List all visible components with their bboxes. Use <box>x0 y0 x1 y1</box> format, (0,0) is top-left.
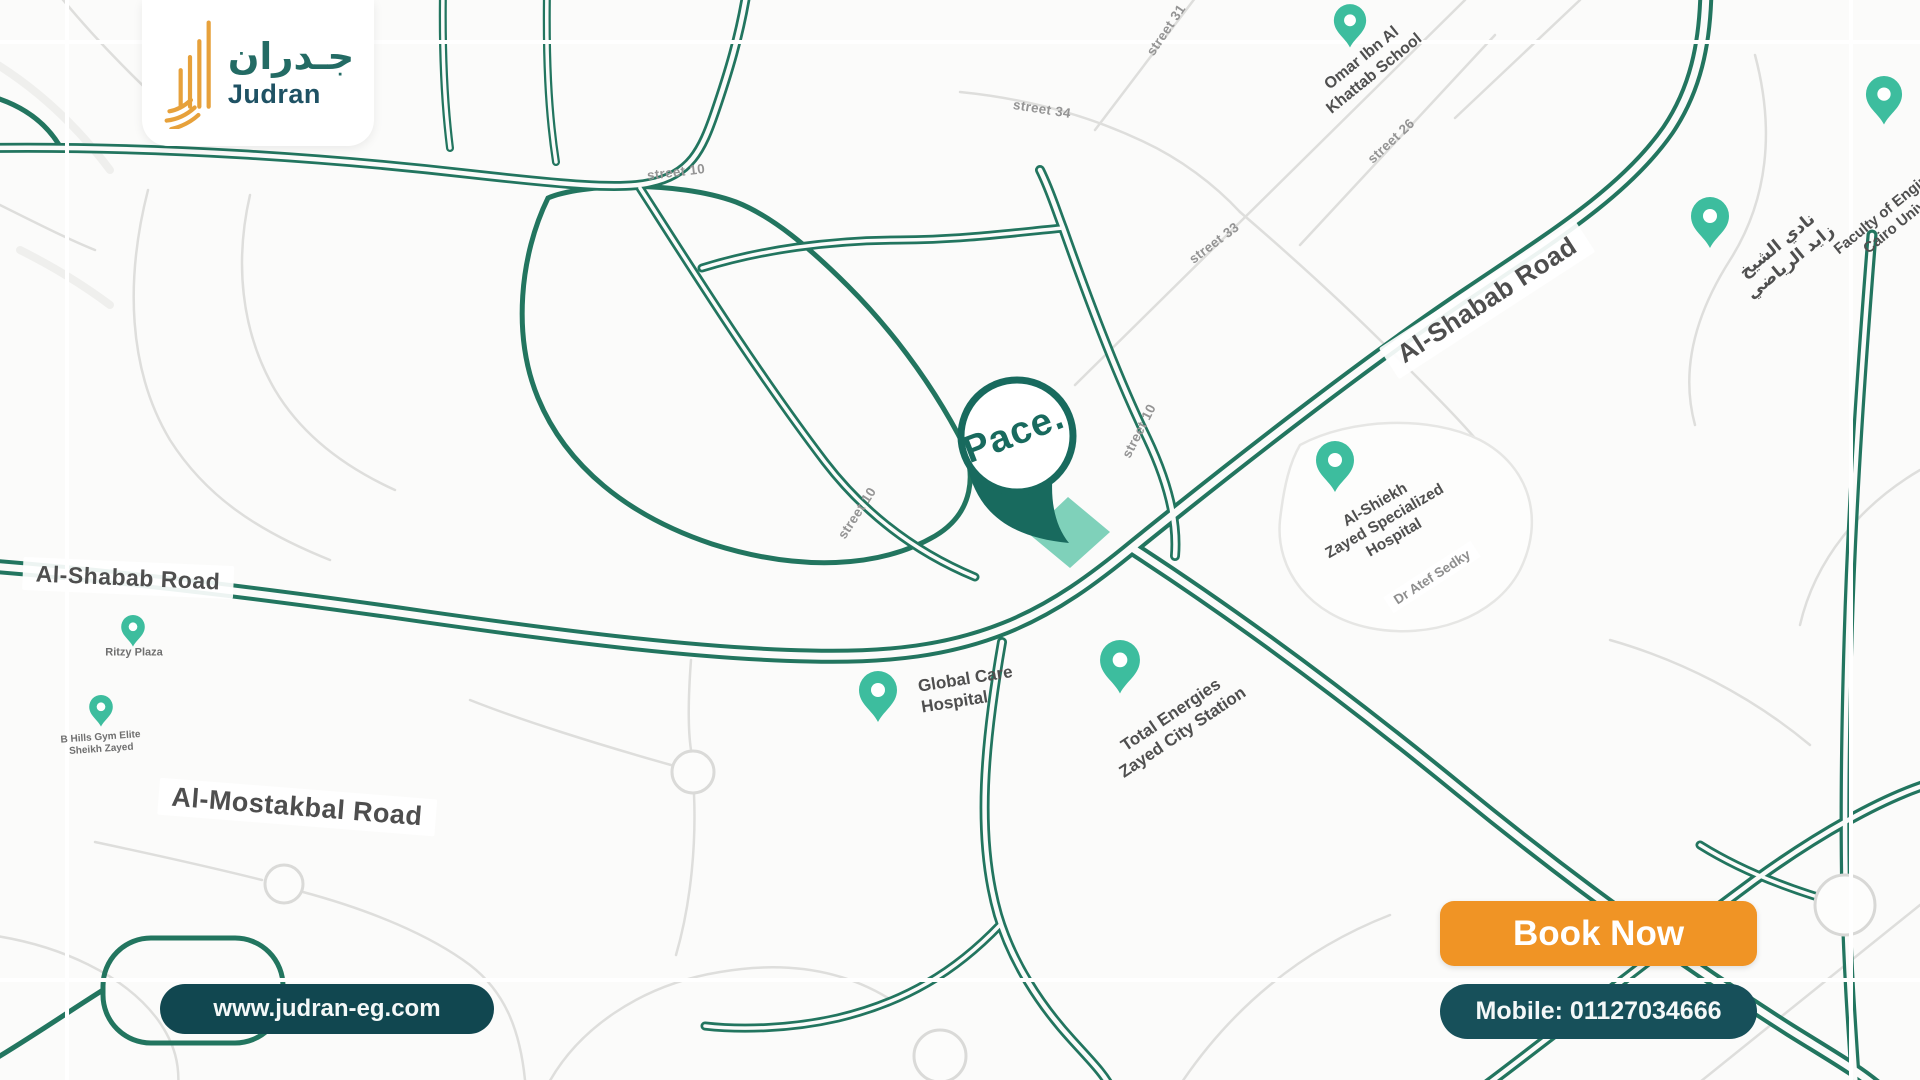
logo-arabic-wordmark: جـدران <box>228 38 354 75</box>
book-now-button[interactable]: Book Now <box>1440 901 1757 966</box>
flyer-map: Pace. Al-Shabab Road Al-Shabab Road Al-M… <box>0 0 1920 1080</box>
judran-logo-icon <box>162 17 218 129</box>
roundabout-bottom-right <box>1815 875 1875 935</box>
poi-label-ritzy-plaza: Ritzy Plaza <box>105 646 162 659</box>
judran-logo-text: جـدران Judran <box>228 38 354 108</box>
mobile-number-pill[interactable]: Mobile: 01127034666 <box>1440 984 1757 1039</box>
website-pill[interactable]: www.judran-eg.com <box>160 984 494 1034</box>
logo-latin-wordmark: Judran <box>228 81 321 108</box>
judran-logo-card: جـدران Judran <box>142 0 374 146</box>
